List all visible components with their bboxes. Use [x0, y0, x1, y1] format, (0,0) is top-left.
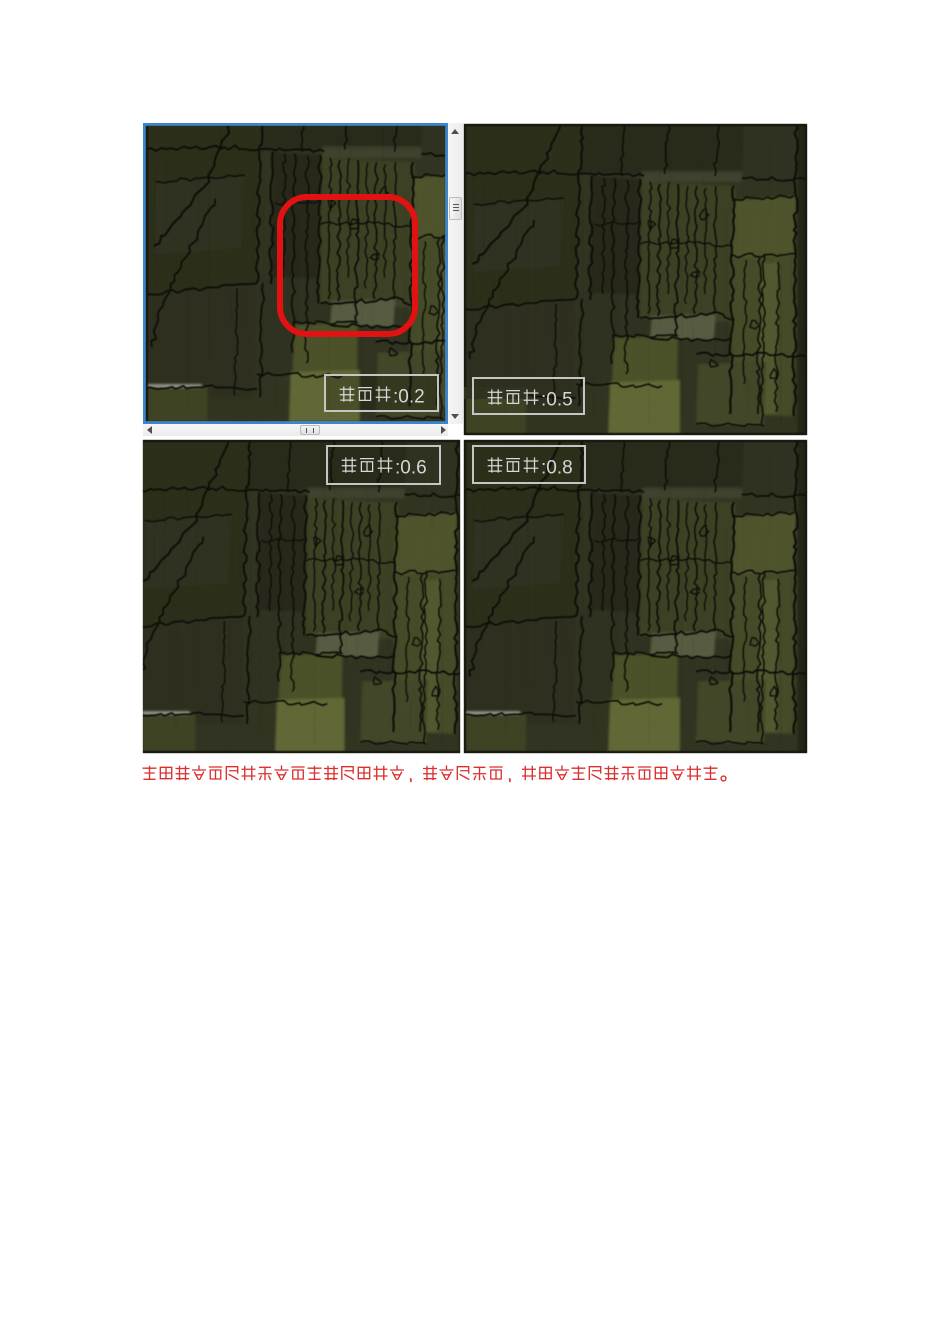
svg-text::0.2: :0.2 — [393, 387, 425, 408]
svg-text::0.5: :0.5 — [541, 390, 573, 411]
svg-text::0.8: :0.8 — [541, 458, 573, 479]
svg-text::0.6: :0.6 — [395, 458, 427, 479]
